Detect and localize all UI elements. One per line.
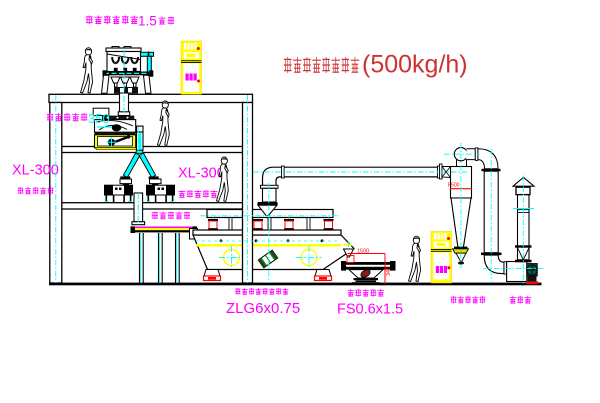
svg-text:1.5: 1.5 [138, 14, 157, 29]
svg-text:345: 345 [386, 267, 392, 276]
svg-text:XL-300: XL-300 [178, 166, 225, 182]
svg-text:F500: F500 [448, 183, 460, 189]
svg-text:ZLG6x0.75: ZLG6x0.75 [226, 300, 300, 317]
svg-text:FS0.6x1.5: FS0.6x1.5 [337, 302, 403, 318]
svg-text:XL-300: XL-300 [12, 163, 59, 179]
svg-text:(500kg/h): (500kg/h) [362, 51, 468, 79]
svg-text:350: 350 [88, 111, 110, 126]
svg-text:1500: 1500 [357, 249, 369, 255]
